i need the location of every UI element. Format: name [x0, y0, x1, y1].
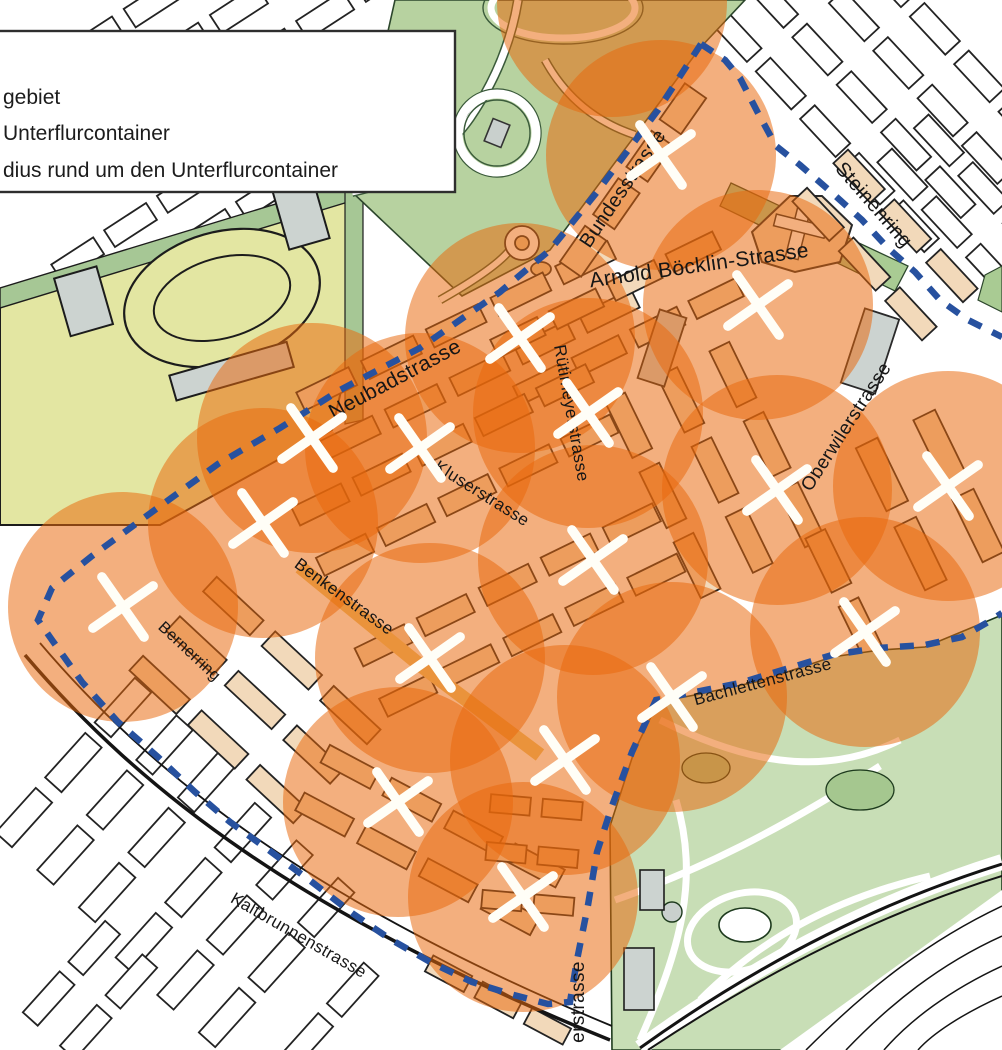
legend-item-pilot-area: gebiet	[3, 86, 60, 109]
legend-panel: gebiet Unterflurcontainer dius rund um d…	[0, 31, 455, 192]
legend-item-container: Unterflurcontainer	[3, 122, 170, 145]
legend-item-radius: dius rund um den Unterflurcontainer	[3, 159, 338, 182]
map-canvas: BundesstrasseSteinenringArnold Böcklin-S…	[0, 0, 1002, 1050]
street-label-erstrasse: erstrasse	[568, 961, 589, 1043]
map-viewport: BundesstrasseSteinenringArnold Böcklin-S…	[0, 0, 1002, 1050]
